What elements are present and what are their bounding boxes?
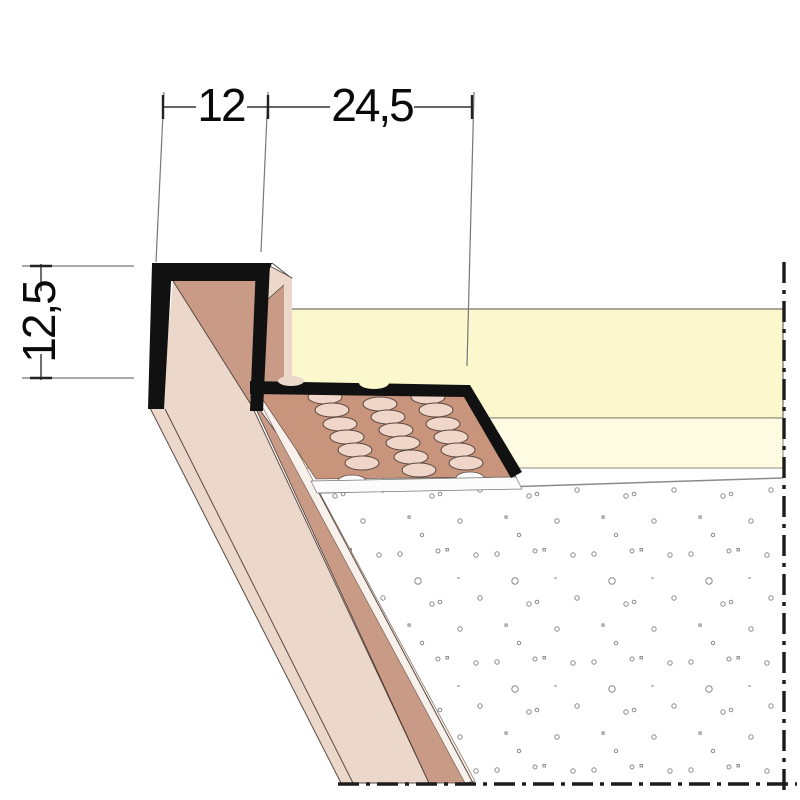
- perforation-hole: [315, 403, 349, 417]
- perforation-hole: [323, 417, 357, 431]
- perforation-hole: [441, 443, 475, 457]
- perforation-hole: [345, 456, 379, 470]
- perforation-hole: [386, 436, 420, 450]
- perforation-hole: [371, 410, 405, 424]
- dimension-label-flange-width: 24,5: [331, 79, 413, 131]
- perforation-hole: [426, 417, 460, 431]
- bar-notch: [278, 376, 304, 386]
- perforation-hole: [402, 463, 436, 477]
- perforation-hole: [363, 397, 397, 411]
- perforation-hole: [379, 423, 413, 437]
- perforation-hole: [330, 430, 364, 444]
- leg-outer-light: [284, 274, 292, 391]
- dimension-label-height: 12,5: [13, 281, 65, 363]
- dimension-label-channel-width: 12: [197, 79, 245, 131]
- perforation-hole: [434, 430, 468, 444]
- perforation-hole: [419, 403, 453, 417]
- bar-notch: [359, 377, 389, 389]
- perforation-hole: [394, 450, 428, 464]
- perforation-hole: [449, 456, 483, 470]
- perforation-hole: [338, 443, 372, 457]
- channel-top-web: [152, 263, 272, 281]
- technical-drawing: 12 24,5 12,5: [0, 0, 800, 800]
